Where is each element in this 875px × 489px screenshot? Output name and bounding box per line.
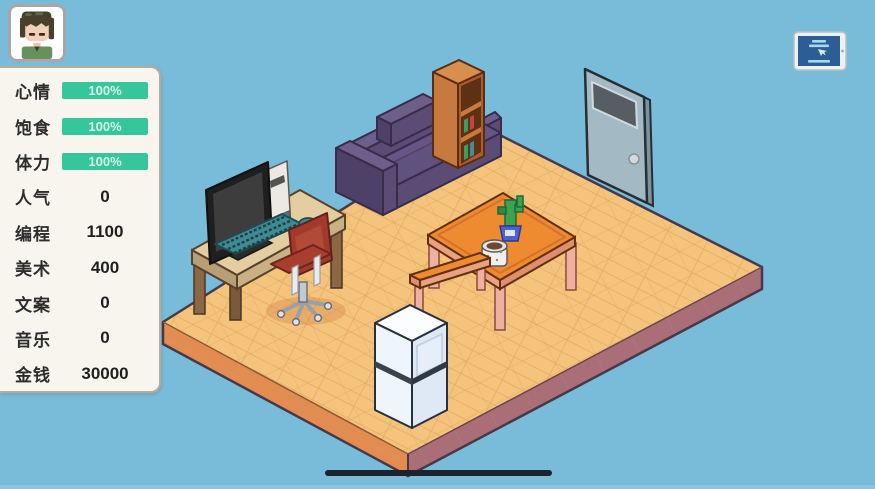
stat-row-popularity: 人气 0 [0, 179, 159, 214]
stat-row-programming: 编程 1100 [0, 215, 159, 250]
writing-value: 0 [62, 293, 148, 313]
popularity-value: 0 [62, 187, 148, 207]
energy-progress-value: 100% [88, 155, 121, 168]
tablet-icon [793, 31, 847, 73]
stat-label: 金钱 [15, 361, 55, 386]
bookshelf[interactable] [433, 60, 484, 168]
home-indicator[interactable] [325, 470, 552, 476]
programming-value: 1100 [62, 222, 148, 242]
stat-row-money: 金钱 30000 [0, 356, 159, 391]
stat-row-energy: 体力 100% [0, 144, 159, 179]
stat-row-mood: 心情 100% [0, 73, 159, 108]
stat-label: 编程 [15, 220, 55, 245]
stat-label: 音乐 [15, 326, 55, 351]
stat-label: 人气 [15, 184, 55, 209]
tablet-button[interactable] [793, 31, 847, 73]
refrigerator[interactable] [375, 305, 447, 428]
energy-progress-bar: 100% [62, 153, 148, 170]
stats-panel: 心情 100% 饱食 100% 体力 100% 人气 0 编程 1100 美术 [0, 66, 161, 393]
mood-progress-value: 100% [88, 84, 121, 97]
mood-progress-bar: 100% [62, 82, 148, 99]
game-screen: 心情 100% 饱食 100% 体力 100% 人气 0 编程 1100 美术 [0, 0, 875, 489]
art-value: 400 [62, 258, 148, 278]
avatar-button[interactable] [8, 4, 66, 62]
stat-label: 心情 [15, 78, 55, 103]
door-knob [629, 154, 639, 164]
satiety-progress-value: 100% [88, 120, 121, 133]
stat-label: 文案 [15, 291, 55, 316]
stat-row-music: 音乐 0 [0, 321, 159, 356]
player-avatar-icon [11, 7, 63, 59]
stat-label: 饱食 [15, 114, 55, 139]
music-value: 0 [62, 328, 148, 348]
satiety-progress-bar: 100% [62, 118, 148, 135]
stat-row-writing: 文案 0 [0, 285, 159, 320]
stat-row-satiety: 饱食 100% [0, 108, 159, 143]
money-value: 30000 [62, 364, 148, 384]
stat-row-art: 美术 400 [0, 250, 159, 285]
bottom-edge-strip [0, 485, 875, 489]
stat-label: 体力 [15, 149, 55, 174]
stat-label: 美术 [15, 255, 55, 280]
